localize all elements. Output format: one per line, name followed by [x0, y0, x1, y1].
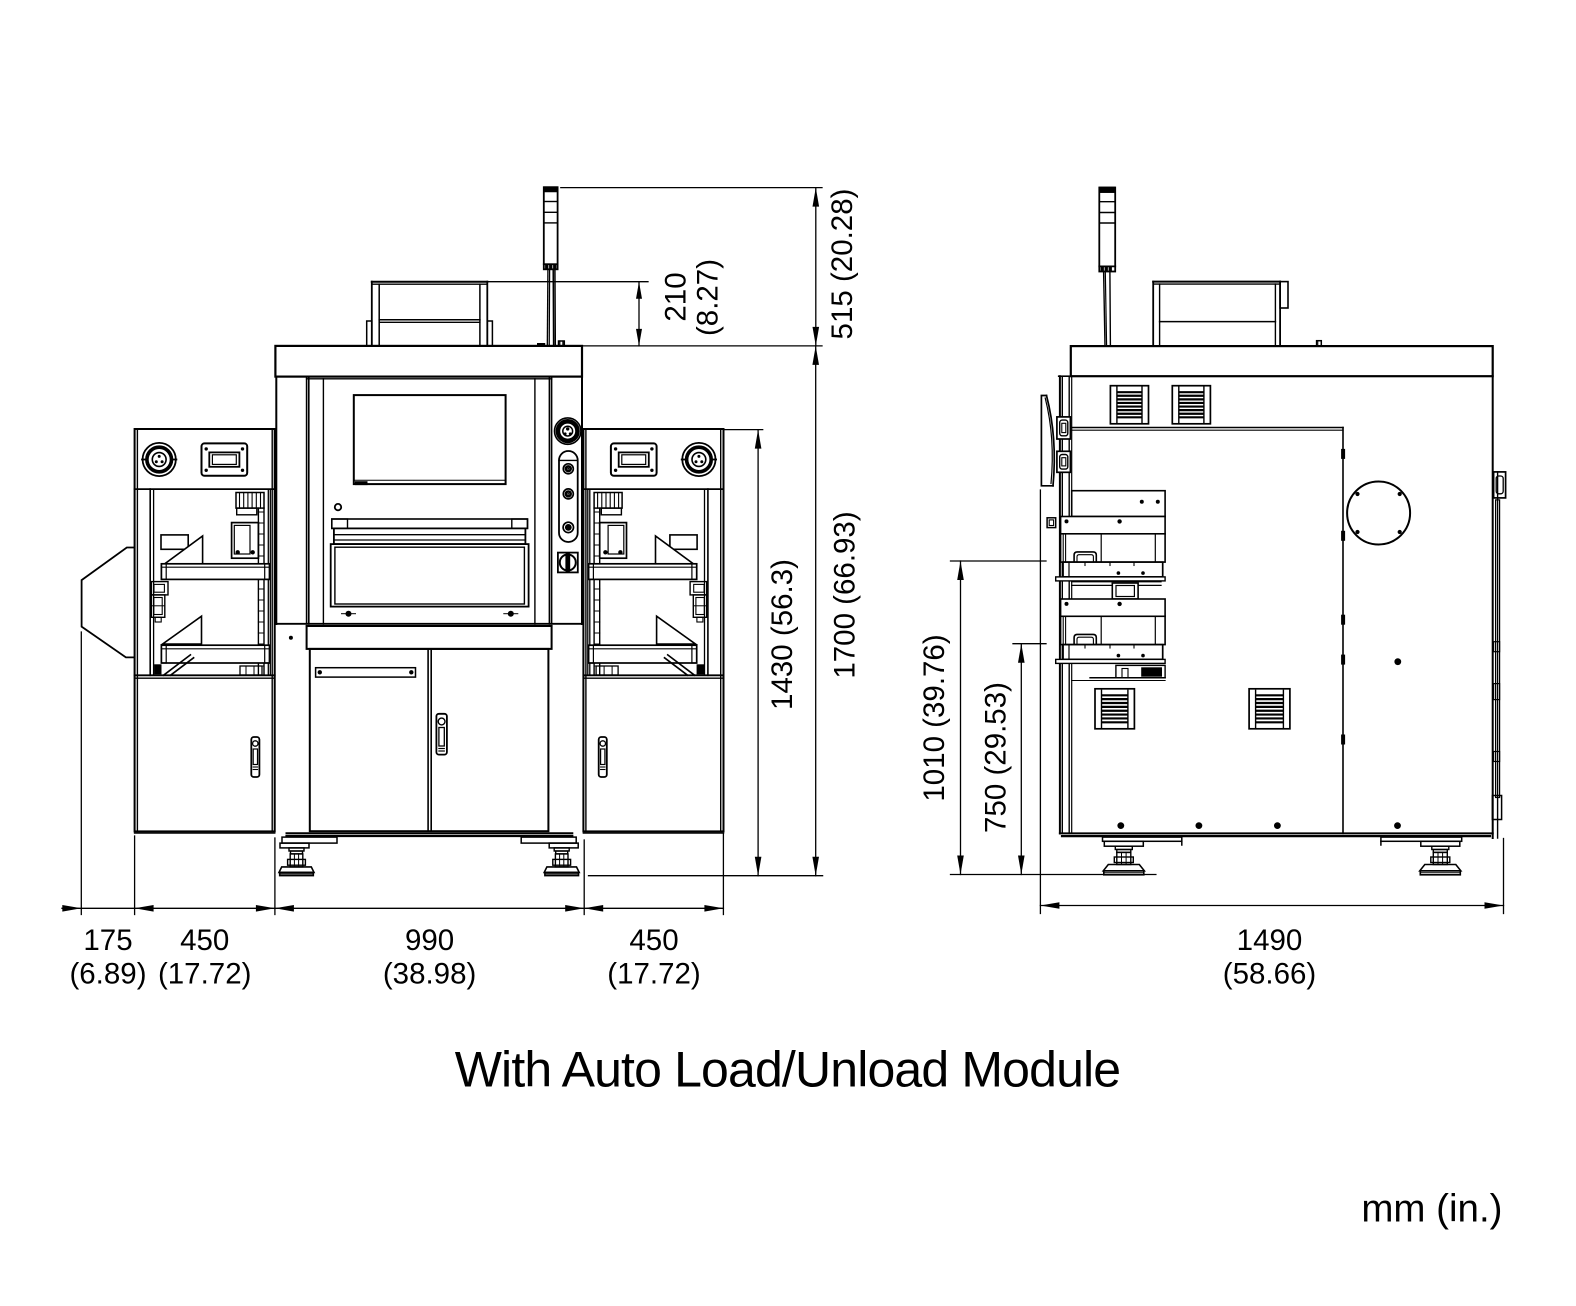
svg-text:(17.72): (17.72)	[158, 957, 251, 990]
svg-text:(38.98): (38.98)	[383, 957, 476, 990]
svg-text:990: 990	[405, 924, 454, 957]
svg-text:(17.72): (17.72)	[607, 957, 700, 990]
svg-text:mm (in.): mm (in.)	[1361, 1188, 1502, 1231]
svg-text:1010 (39.76): 1010 (39.76)	[918, 634, 951, 801]
svg-text:(8.27): (8.27)	[692, 259, 725, 336]
svg-text:210: 210	[660, 272, 693, 321]
svg-text:1430 (56.3): 1430 (56.3)	[766, 559, 799, 710]
svg-text:750 (29.53): 750 (29.53)	[980, 682, 1013, 833]
svg-text:(58.66): (58.66)	[1223, 957, 1316, 990]
svg-text:515 (20.28): 515 (20.28)	[826, 189, 859, 340]
svg-text:1700 (66.93): 1700 (66.93)	[828, 511, 861, 678]
svg-text:With Auto Load/Unload Module: With Auto Load/Unload Module	[455, 1042, 1121, 1098]
svg-text:(6.89): (6.89)	[69, 957, 146, 990]
svg-text:450: 450	[180, 924, 229, 957]
svg-text:175: 175	[83, 924, 132, 957]
svg-text:450: 450	[629, 924, 678, 957]
svg-text:1490: 1490	[1237, 924, 1303, 957]
